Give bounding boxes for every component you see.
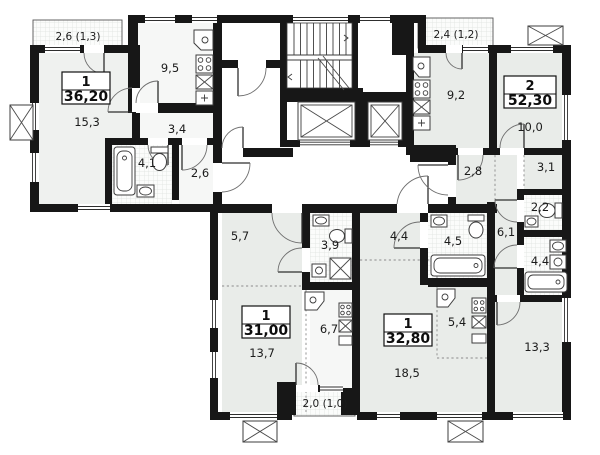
balcony-label-apt1: 2,6 (1,3) (56, 31, 101, 43)
apartment-total-area: 31,00 (244, 323, 289, 339)
window (562, 95, 571, 140)
elevator-shaft (298, 102, 355, 140)
room-label-bedroom-apt2: 13,3 (524, 340, 550, 354)
apartment-rooms-count: 1 (403, 317, 412, 332)
window (45, 45, 80, 53)
window (320, 385, 343, 392)
floor-plan-canvas: 1 36,20 2 52,30 1 31,00 1 32,80 15,3 9,5… (0, 0, 600, 455)
door (397, 176, 428, 204)
elevators (298, 102, 402, 140)
window (293, 15, 348, 23)
window (377, 412, 400, 420)
room-label-kitchen-apt4: 5,4 (448, 315, 466, 329)
room-label-bath-apt2: 4,4 (531, 254, 549, 268)
room-label-kitchen-apt1: 9,5 (161, 61, 179, 75)
room-label-bath-apt4: 4,5 (444, 234, 462, 248)
kitchen-apt2-fixtures (413, 57, 430, 130)
apartment-card-3: 1 31,00 (242, 306, 290, 339)
apartment-rooms-count: 2 (525, 79, 534, 94)
room-label-living-apt2: 10,0 (517, 120, 543, 134)
staircase (287, 23, 352, 90)
door (222, 127, 243, 148)
room-label-living-apt3: 13,7 (249, 346, 275, 360)
room-label-hall-apt3: 5,7 (231, 229, 249, 243)
apartment-total-area: 36,20 (64, 89, 109, 105)
window (463, 45, 488, 53)
room-label-living-apt1: 15,3 (74, 115, 100, 129)
window (513, 412, 563, 420)
balcony-label-apt3: 2,0 (1,0) (303, 398, 348, 410)
window (360, 15, 390, 23)
window (511, 45, 553, 53)
apartment-card-2: 2 52,30 (504, 76, 556, 109)
vent-shaft-icon (528, 26, 563, 45)
room-label-living-apt4: 18,5 (394, 366, 420, 380)
kitchen-apt1-fixtures (194, 30, 213, 105)
floor-plan-drawing: 1 36,20 2 52,30 1 31,00 1 32,80 15,3 9,5… (0, 0, 600, 455)
room-label-wc-apt2: 2,2 (531, 200, 549, 214)
window (210, 352, 218, 378)
vent-shaft-icon (448, 421, 483, 442)
door (238, 68, 266, 96)
vent-shaft-icon (10, 105, 33, 140)
apartment-rooms-count: 1 (261, 309, 270, 324)
window (437, 412, 482, 420)
window (78, 204, 110, 212)
room-label-entry-apt1: 2,6 (191, 166, 209, 180)
room-label-bath-apt3: 3,9 (321, 238, 339, 252)
apartment-card-1: 1 36,20 (62, 72, 110, 105)
window (192, 15, 217, 23)
room-label-hall-apt2: 6,1 (497, 225, 515, 239)
apartment-total-area: 52,30 (508, 93, 553, 109)
window (562, 298, 571, 342)
window (230, 412, 277, 420)
window (210, 300, 218, 328)
vent-shaft-icon (243, 421, 277, 442)
room-label-kitchen-apt3: 6,7 (320, 322, 338, 336)
elevator-shaft (368, 102, 402, 140)
apartment-total-area: 32,80 (386, 331, 431, 347)
room-label-kitchen-apt2: 9,2 (447, 88, 465, 102)
window (145, 15, 175, 23)
balcony-label-apt2: 2,4 (1,2) (434, 29, 479, 41)
apartment-card-4: 1 32,80 (384, 314, 432, 347)
door (418, 165, 448, 195)
door (222, 163, 250, 192)
room-label-entry-apt2: 2,8 (464, 164, 482, 178)
apartment-rooms-count: 1 (81, 75, 90, 90)
room-label-hall-apt1: 3,4 (168, 122, 186, 136)
room-label-hall-apt4: 4,4 (390, 229, 408, 243)
room-label-bath-apt1: 4,1 (138, 156, 156, 170)
room-label-wardrobe-apt2: 3,1 (537, 160, 555, 174)
window (30, 153, 39, 182)
